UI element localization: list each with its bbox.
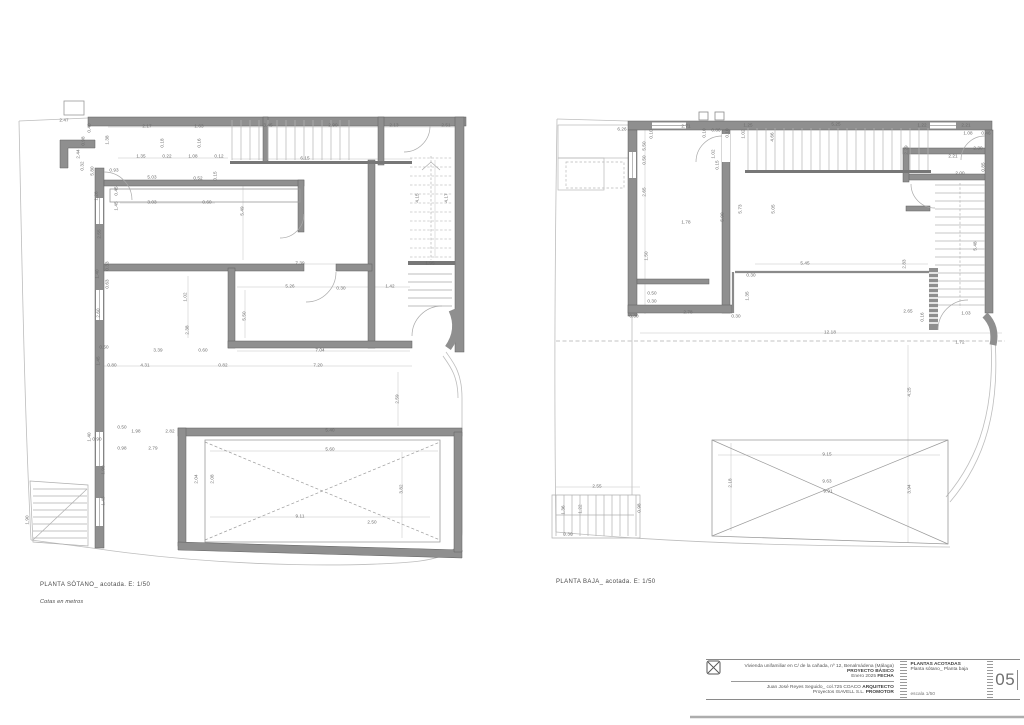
- right-terrace-steps: [558, 125, 630, 190]
- dimension-label: 1.95: [425, 262, 434, 267]
- left-dimension-lines: [99, 127, 458, 545]
- dimension-label: 2.21: [948, 155, 957, 160]
- left-exterior-stair: [30, 481, 88, 546]
- dimension-label: 2.08: [211, 474, 216, 483]
- dimension-label: 0.63: [106, 279, 111, 288]
- dimension-label: 2.71: [681, 125, 690, 130]
- dimension-label: 2.65: [903, 310, 912, 315]
- floor-plan-canvas: [0, 0, 1024, 725]
- left-plan-drawing: [19, 101, 466, 565]
- sheet-subtitle: Planta sótano_ Planta baja: [911, 667, 983, 672]
- dimension-label: 0.12: [214, 155, 223, 160]
- dimension-label: 3.39: [153, 349, 162, 354]
- dimension-label: 1.45: [102, 496, 107, 505]
- dimension-label: 1.22: [917, 124, 926, 129]
- drawing-sheet: 2.171.633.452.902.132.510.180.161.350.22…: [0, 0, 1024, 725]
- separator-hatch: [900, 661, 907, 698]
- dimension-label: 0.30: [746, 274, 755, 279]
- dimension-label: 0.10: [703, 128, 708, 137]
- dimension-label: 0.80: [107, 364, 116, 369]
- dimension-label: 3.82: [400, 484, 405, 493]
- dimension-label: 1.45: [97, 356, 102, 365]
- dimension-label: 5.90: [721, 212, 726, 221]
- dimension-label: 1.25: [743, 124, 752, 129]
- dimension-label: 0.50: [647, 292, 656, 297]
- dimension-label: 1.40: [88, 432, 93, 441]
- dimension-label: 2.44: [77, 149, 82, 158]
- dimension-label: 5.50: [243, 311, 248, 320]
- dimension-label: 2.65: [643, 187, 648, 196]
- dimension-label: 2.38: [186, 325, 191, 334]
- dimension-label: 0.22: [162, 155, 171, 160]
- sheet-number-divider: [1017, 670, 1018, 690]
- dimension-label: 5.48: [974, 241, 979, 250]
- dimension-label: 9.91: [823, 490, 832, 495]
- dimension-label: 1.38: [106, 135, 111, 144]
- dimension-label: 0.98: [117, 447, 126, 452]
- dimension-label: 1.08: [963, 132, 972, 137]
- dimension-label: 2.18: [729, 478, 734, 487]
- dimension-label: 3.94: [908, 484, 913, 493]
- dimension-label: 0.46: [981, 132, 990, 137]
- dimension-label: 9.11: [296, 515, 305, 520]
- dimension-label: 0.86: [711, 129, 720, 134]
- dimension-label: 0.30: [563, 533, 572, 538]
- dimension-label: 0.30: [336, 287, 345, 292]
- dimension-label: 0.15: [716, 160, 721, 169]
- dimension-label: 4.15: [416, 193, 421, 202]
- dimension-label: 2.00: [955, 172, 964, 177]
- dimension-label: 2.60: [97, 308, 102, 317]
- dimension-label: 2.55: [98, 229, 103, 238]
- dimension-label: 1.45: [115, 201, 120, 210]
- dimension-label: 2.04: [195, 474, 200, 483]
- date-value: Enero 2025: [851, 674, 876, 679]
- dimension-label: 0.93: [109, 169, 118, 174]
- dimension-label: 0.45: [115, 186, 120, 195]
- people-rows: Juan José Reyes Seguido_ col.725 COACO A…: [731, 685, 894, 695]
- dimension-label: 5.60: [325, 448, 334, 453]
- dimension-label: 2.51: [441, 124, 450, 129]
- dimension-label: 4.31: [140, 364, 149, 369]
- dimension-label: 1.02: [712, 149, 717, 158]
- promoter-label: PROMOTOR: [866, 690, 894, 695]
- right-dimension-lines: [556, 126, 1002, 543]
- dimension-label: 3.45: [263, 124, 272, 129]
- right-curved-wall: [985, 315, 994, 345]
- left-curved-wall: [448, 310, 456, 348]
- dimension-label: 2.13: [389, 124, 398, 129]
- dimension-label: 1.26: [95, 191, 100, 200]
- right-hatched-wall: [929, 268, 938, 330]
- dimension-label: 0.32: [81, 161, 86, 170]
- dimension-label: 5.73: [739, 204, 744, 213]
- sheet-title-cell: PLANTAS ACOTADAS Planta sótano_ Planta b…: [909, 660, 985, 699]
- project-rows: Vivienda unifamiliar en C/ de la cañada,…: [731, 664, 894, 682]
- promoter-value: Proyectos ISAVELL S.L.: [813, 690, 864, 695]
- left-garage-x: [205, 440, 440, 542]
- dimension-label: 1.02: [184, 292, 189, 301]
- dimension-label: 0.10: [726, 128, 731, 137]
- dimension-label: 5.49: [241, 206, 246, 215]
- dimension-label: 7.20: [313, 364, 322, 369]
- dimension-label: 1.03: [961, 312, 970, 317]
- dimension-label: 1.90: [26, 515, 31, 524]
- dimension-label: 5.05: [772, 204, 777, 213]
- dimension-label: 1.42: [385, 285, 394, 290]
- dimension-label: 1.63: [194, 125, 203, 130]
- dimension-label: 0.30: [731, 315, 740, 320]
- scale-note: escala 1/50: [911, 692, 983, 697]
- date-label: FECHA: [877, 674, 894, 679]
- dimension-label: 0.52: [193, 177, 202, 182]
- dimension-label: 2.47: [59, 119, 68, 124]
- dimension-label: 0.15: [214, 171, 219, 180]
- dimension-label: 0.10: [650, 129, 655, 138]
- project-info-cell: Vivienda unifamiliar en C/ de la cañada,…: [731, 660, 898, 699]
- dimension-label: 1.50: [645, 251, 650, 260]
- dimension-label: 1.02: [742, 129, 747, 138]
- dimension-label: 0.50: [99, 346, 108, 351]
- dimension-label: 0.40: [88, 123, 93, 132]
- dimension-label: 2.83: [903, 259, 908, 268]
- dimension-label: 2.78: [683, 311, 692, 316]
- dimension-label: 0.30: [629, 315, 638, 320]
- sheet-number-cell: 05: [995, 660, 1020, 699]
- dimension-label: 5.03: [147, 176, 156, 181]
- dimension-label: 7.04: [315, 349, 324, 354]
- dimension-label: 0.16: [198, 138, 203, 147]
- right-walls: [628, 121, 993, 316]
- dimension-label: 4.66: [771, 132, 776, 141]
- dimension-label: 0.90: [92, 438, 101, 443]
- dimension-label: 0.33: [106, 261, 111, 270]
- dimension-label: 3.03: [147, 201, 156, 206]
- dimension-label: 6.15: [300, 157, 309, 162]
- dimension-label: 2.90: [328, 124, 337, 129]
- dimension-label: 2.17: [142, 125, 151, 130]
- dimension-label: 2.30: [973, 147, 982, 152]
- right-plan-drawing: [552, 112, 1005, 547]
- left-plan-caption: PLANTA SÓTANO_ acotada. E: 1/50: [40, 582, 150, 588]
- dimension-label: 0.98: [638, 503, 643, 512]
- dimension-label: 0.60: [198, 349, 207, 354]
- architect-stamp-icon: [706, 660, 731, 699]
- dimension-label: 5.26: [285, 285, 294, 290]
- dimension-label: 5.25: [831, 123, 840, 128]
- right-thin-walls: [733, 272, 930, 313]
- dimension-label: 2.59: [396, 394, 401, 403]
- dimension-label: 1.35: [136, 155, 145, 160]
- dimension-label: 4.25: [908, 387, 913, 396]
- dimension-label: 6.26: [617, 128, 626, 133]
- dimension-label: 0.50: [117, 426, 126, 431]
- right-door-flags: [699, 112, 724, 120]
- left-ramp-shaft: [410, 156, 453, 260]
- dimension-label: 2.29: [905, 145, 910, 154]
- dimension-label: 0.30: [647, 300, 656, 305]
- title-block: Vivienda unifamiliar en C/ de la cañada,…: [706, 659, 1020, 700]
- dimension-label: 5.80: [91, 166, 96, 175]
- dimension-label: 5.40: [325, 429, 334, 434]
- dimension-label: 5.50: [643, 141, 648, 150]
- dimension-label: 2.50: [367, 521, 376, 526]
- dimension-label: 0.50: [643, 155, 648, 164]
- dimension-label: 1.40: [96, 269, 101, 278]
- dimension-label: 1.22: [579, 504, 584, 513]
- dimension-label: 4.17: [445, 193, 450, 202]
- dimension-label: 0.16: [921, 312, 926, 321]
- dimension-label: 0.18: [161, 138, 166, 147]
- dimension-label: 1.08: [188, 155, 197, 160]
- dimension-label: 1.90: [102, 465, 107, 474]
- left-lower-stair: [408, 274, 452, 336]
- dimension-label: 2.55: [592, 485, 601, 490]
- dimension-label: 9.63: [822, 480, 831, 485]
- dimension-label: 1.78: [681, 221, 690, 226]
- dimension-label: 1.36: [562, 505, 567, 514]
- dimension-label: 2.82: [165, 430, 174, 435]
- dimension-label: 0.85: [982, 162, 987, 171]
- dimension-label: 7.39: [295, 262, 304, 267]
- dimension-label: 0.60: [202, 201, 211, 206]
- left-walls: [60, 117, 466, 558]
- left-shaft-box: [64, 101, 84, 115]
- dimension-label: 0.82: [218, 364, 227, 369]
- dimension-label: 1.72: [955, 341, 964, 346]
- dimension-label: 12.18: [824, 331, 836, 336]
- dimension-label: 1.98: [131, 430, 140, 435]
- dimension-label: 5.45: [800, 262, 809, 267]
- dimension-label: 0.98: [82, 136, 87, 145]
- cotas-note: Cotas en metros: [40, 599, 83, 605]
- right-plan-caption: PLANTA BAJA_ acotada. E: 1/50: [556, 579, 656, 585]
- dimension-label: 2.79: [148, 447, 157, 452]
- dimension-label: 2.21: [961, 124, 970, 129]
- separator-hatch: [987, 661, 994, 698]
- dimension-label: 1.35: [746, 291, 751, 300]
- dimension-label: 9.15: [822, 453, 831, 458]
- sheet-number: 05: [995, 670, 1015, 690]
